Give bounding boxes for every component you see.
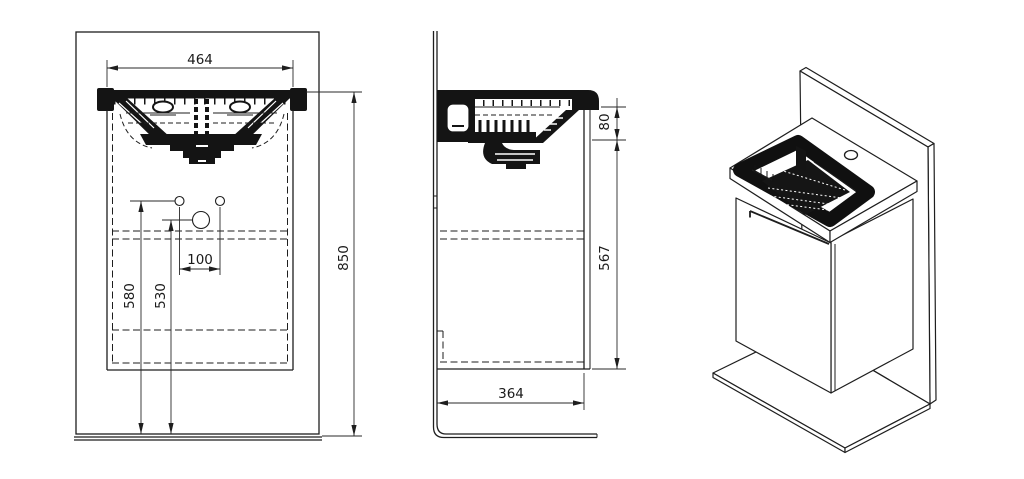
dim-364-label: 364 <box>498 386 524 402</box>
dim-100-label: 100 <box>187 252 213 268</box>
dim-530-label: 530 <box>153 283 169 309</box>
cabinet-side <box>437 110 590 369</box>
drawing-canvas: 464 850 580 530 <box>0 0 1024 479</box>
overflow-right <box>230 102 250 113</box>
isometric-view <box>713 68 936 453</box>
dim-580-label: 580 <box>122 283 138 309</box>
dim-580: 580 <box>122 201 175 434</box>
dim-850: 850 <box>306 92 362 436</box>
washbasin-side-section <box>437 90 599 169</box>
front-view: 464 850 580 530 <box>74 32 362 440</box>
dim-567-label: 567 <box>597 245 613 271</box>
dim-464-label: 464 <box>187 52 213 68</box>
dim-80-label: 80 <box>597 113 613 130</box>
side-view: 80 567 364 <box>434 31 627 438</box>
technical-drawing: 464 850 580 530 <box>0 0 1024 479</box>
washbasin-front-section <box>97 88 307 164</box>
connection-hole-right <box>216 197 225 206</box>
connection-hole-left <box>175 197 184 206</box>
dim-464: 464 <box>107 52 293 87</box>
dim-364: 364 <box>437 373 584 410</box>
dim-80: 80 <box>592 98 626 369</box>
dim-850-label: 850 <box>336 245 352 271</box>
drain-outlet-hole <box>193 212 210 229</box>
overflow-left <box>153 102 173 113</box>
iso-tap-hole <box>845 151 858 160</box>
dim-567: 567 <box>592 140 626 369</box>
